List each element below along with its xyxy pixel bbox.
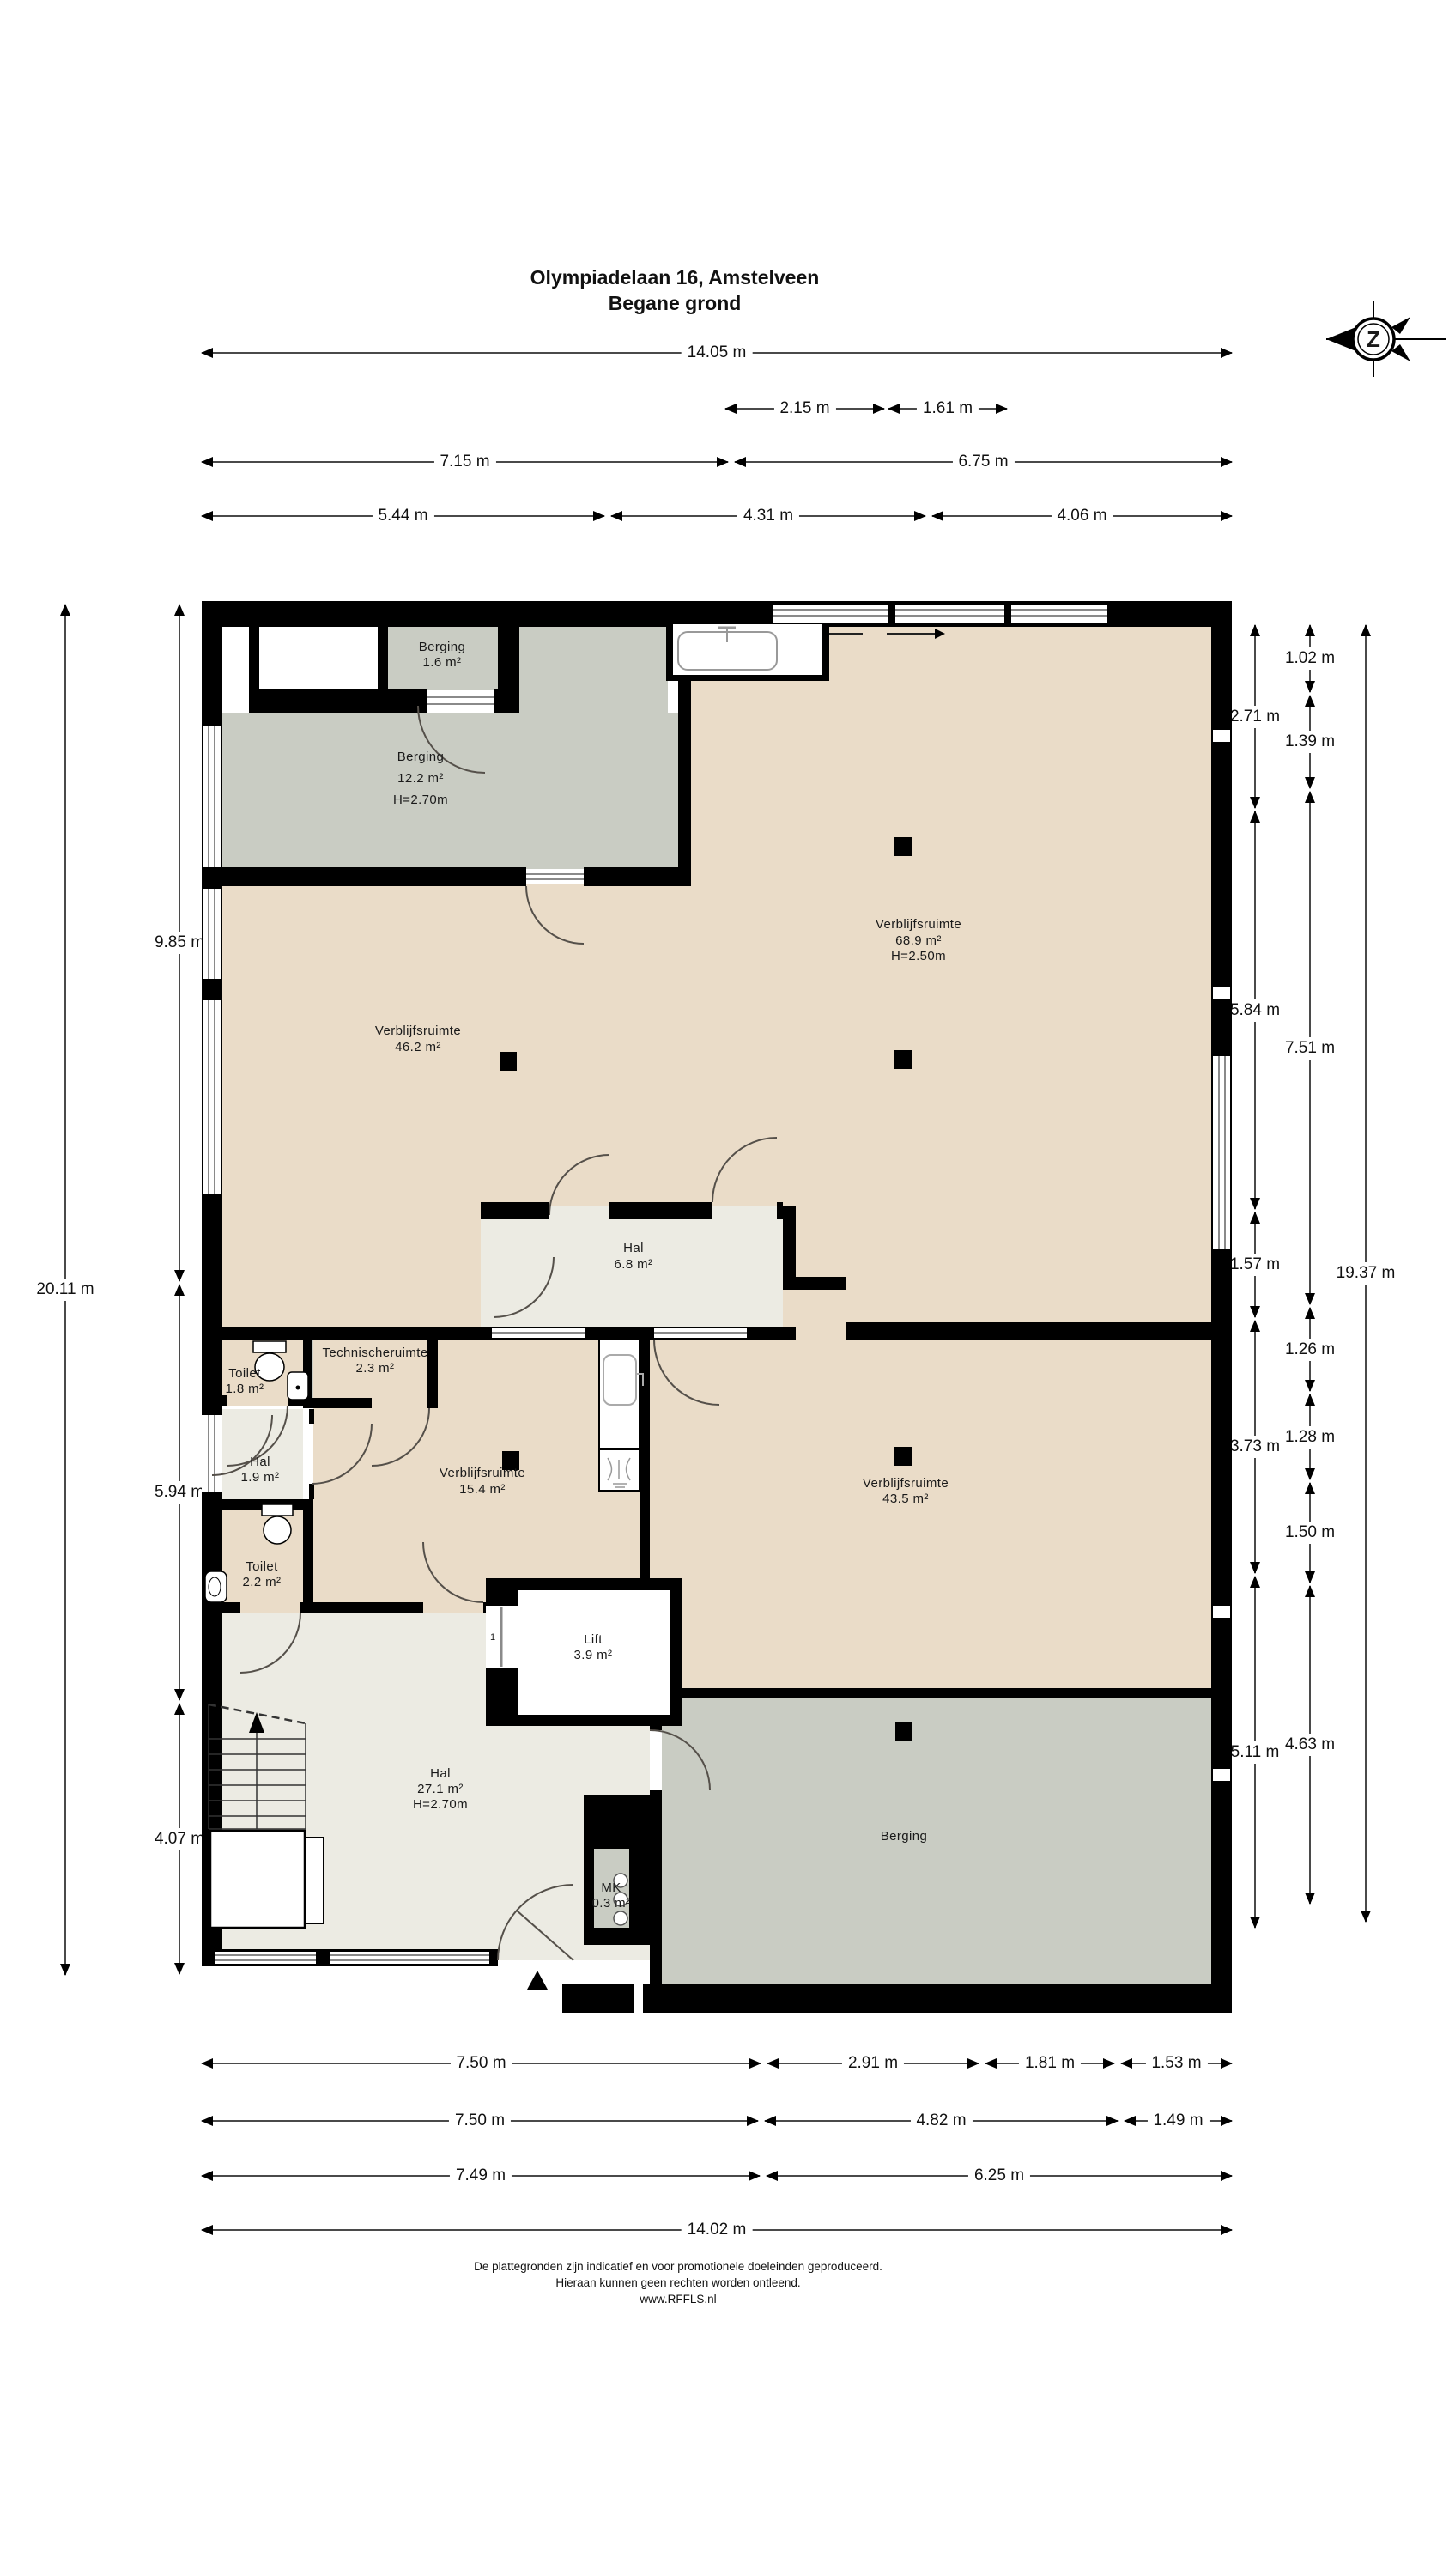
dim-right-1-39: 1.39 m: [1309, 696, 1311, 788]
label-verblijf-15: Verblijfsruimte: [440, 1466, 525, 1480]
svg-text:46.2 m²: 46.2 m²: [395, 1040, 441, 1054]
entrance-arrow-icon: [527, 1971, 548, 1990]
meter-icon: [614, 1911, 627, 1925]
label-technische: Technischeruimte: [322, 1346, 427, 1360]
floor-title: Begane grond: [246, 290, 1104, 316]
footer-disclaimer: De plattegronden zijn indicatief en voor…: [249, 2258, 1107, 2307]
toilet2-bowl-icon: [264, 1516, 291, 1544]
label-verblijf-46: Verblijfsruimte: [375, 1024, 461, 1038]
toilet1-cistern-icon: [253, 1341, 286, 1352]
svg-text:H=2.70m: H=2.70m: [393, 793, 448, 807]
pillar: [895, 1722, 912, 1741]
label-berging-left: Berging: [397, 750, 445, 764]
dim-right-3-73: 3.73 m: [1254, 1321, 1256, 1573]
dim-right-1-50: 1.50 m: [1309, 1483, 1311, 1583]
page-title: Olympiadelaan 16, Amstelveen Begane gron…: [246, 264, 1104, 316]
boiler-icon: [603, 1355, 636, 1405]
svg-text:H=2.70m: H=2.70m: [413, 1797, 468, 1812]
pillar: [894, 837, 912, 856]
compass-label: Z: [1367, 326, 1380, 352]
svg-text:2.3 m²: 2.3 m²: [356, 1361, 395, 1376]
label-lift: Lift: [584, 1632, 603, 1647]
svg-text:0.3 m²: 0.3 m²: [592, 1896, 631, 1911]
pillar: [894, 1050, 912, 1069]
footer-url: www.RFFLS.nl: [249, 2291, 1107, 2307]
label-hal-1: Hal: [250, 1455, 270, 1469]
dim-top-1-61: 1.61 m: [888, 408, 1007, 410]
label-mk: MK: [601, 1880, 621, 1895]
label-hal-27: Hal: [430, 1766, 451, 1781]
floor-plan: Berging 1.6 m² Berging 12.2 m² H=2.70m V…: [202, 601, 1232, 2031]
dim-left-9-85: 9.85 m: [179, 605, 180, 1281]
disclaimer-line-2: Hieraan kunnen geen rechten worden ontle…: [249, 2275, 1107, 2291]
label-verblijf-68: Verblijfsruimte: [876, 917, 961, 932]
dim-right-1-57: 1.57 m: [1254, 1212, 1256, 1317]
dim-top-6-75: 6.75 m: [735, 461, 1232, 463]
disclaimer-line-1: De plattegronden zijn indicatief en voor…: [249, 2258, 1107, 2275]
svg-text:43.5 m²: 43.5 m²: [882, 1492, 929, 1506]
svg-text:68.9 m²: 68.9 m²: [895, 933, 942, 948]
dim-right-4-63: 4.63 m: [1309, 1586, 1311, 1904]
pillar: [894, 1447, 912, 1466]
dim-right-1-02: 1.02 m: [1309, 625, 1311, 692]
stair-closet: [210, 1831, 305, 1928]
dim-bot-7-49: 7.49 m: [202, 2175, 760, 2177]
svg-text:12.2 m²: 12.2 m²: [397, 771, 444, 786]
dim-bot-total: 14.02 m: [202, 2229, 1232, 2231]
toilet2-cistern-icon: [262, 1504, 293, 1516]
floorplan-page: Olympiadelaan 16, Amstelveen Begane gron…: [0, 0, 1449, 2576]
dim-left-total: 20.11 m: [64, 605, 66, 1975]
dim-top-7-15: 7.15 m: [202, 461, 728, 463]
svg-text:H=2.50m: H=2.50m: [891, 949, 946, 963]
dim-top-total: 14.05 m: [202, 352, 1232, 354]
dim-bot-4-82: 4.82 m: [765, 2120, 1118, 2122]
label-berging-top: Berging: [419, 640, 466, 654]
label-hal-6: Hal: [623, 1241, 644, 1255]
label-berging-bottom: Berging: [881, 1829, 928, 1844]
lift-door-number: 1: [490, 1632, 496, 1643]
compass-icon: Z: [1326, 296, 1446, 382]
svg-text:2.2 m²: 2.2 m²: [243, 1575, 282, 1589]
dim-right-7-51: 7.51 m: [1309, 792, 1311, 1304]
dim-right-total: 19.37 m: [1365, 625, 1367, 1922]
dim-bot-6-25: 6.25 m: [767, 2175, 1232, 2177]
dim-bot-1-53: 1.53 m: [1121, 2063, 1232, 2064]
dim-right-1-26: 1.26 m: [1309, 1308, 1311, 1391]
dim-bot-7-50a: 7.50 m: [202, 2063, 761, 2064]
room-fills: [212, 614, 1211, 1984]
dim-bot-1-81: 1.81 m: [985, 2063, 1114, 2064]
label-toilet-1: Toilet: [228, 1366, 261, 1381]
dim-top-4-31: 4.31 m: [611, 515, 925, 517]
svg-text:1.6 m²: 1.6 m²: [423, 655, 462, 670]
dim-right-5-84: 5.84 m: [1254, 811, 1256, 1209]
dim-bot-1-49: 1.49 m: [1125, 2120, 1232, 2122]
dim-right-2-71: 2.71 m: [1254, 625, 1256, 808]
dim-bot-2-91: 2.91 m: [767, 2063, 979, 2064]
svg-text:6.8 m²: 6.8 m²: [615, 1257, 653, 1272]
dim-left-4-07: 4.07 m: [179, 1704, 180, 1974]
address-title: Olympiadelaan 16, Amstelveen: [246, 264, 1104, 290]
svg-text:1.8 m²: 1.8 m²: [226, 1382, 264, 1396]
dim-top-4-06: 4.06 m: [932, 515, 1232, 517]
dim-bot-7-50b: 7.50 m: [202, 2120, 758, 2122]
svg-text:27.1 m²: 27.1 m²: [417, 1782, 464, 1796]
dim-left-5-94: 5.94 m: [179, 1285, 180, 1700]
label-toilet-2: Toilet: [246, 1559, 278, 1574]
dim-right-1-28: 1.28 m: [1309, 1394, 1311, 1479]
dim-top-2-15: 2.15 m: [725, 408, 884, 410]
svg-text:15.4 m²: 15.4 m²: [459, 1482, 506, 1497]
svg-text:3.9 m²: 3.9 m²: [574, 1648, 613, 1662]
label-verblijf-43: Verblijfsruimte: [863, 1476, 949, 1491]
dim-right-5-11: 5.11 m: [1254, 1577, 1256, 1928]
pillar: [500, 1052, 517, 1071]
svg-text:1.9 m²: 1.9 m²: [241, 1470, 280, 1485]
dim-top-5-44: 5.44 m: [202, 515, 604, 517]
